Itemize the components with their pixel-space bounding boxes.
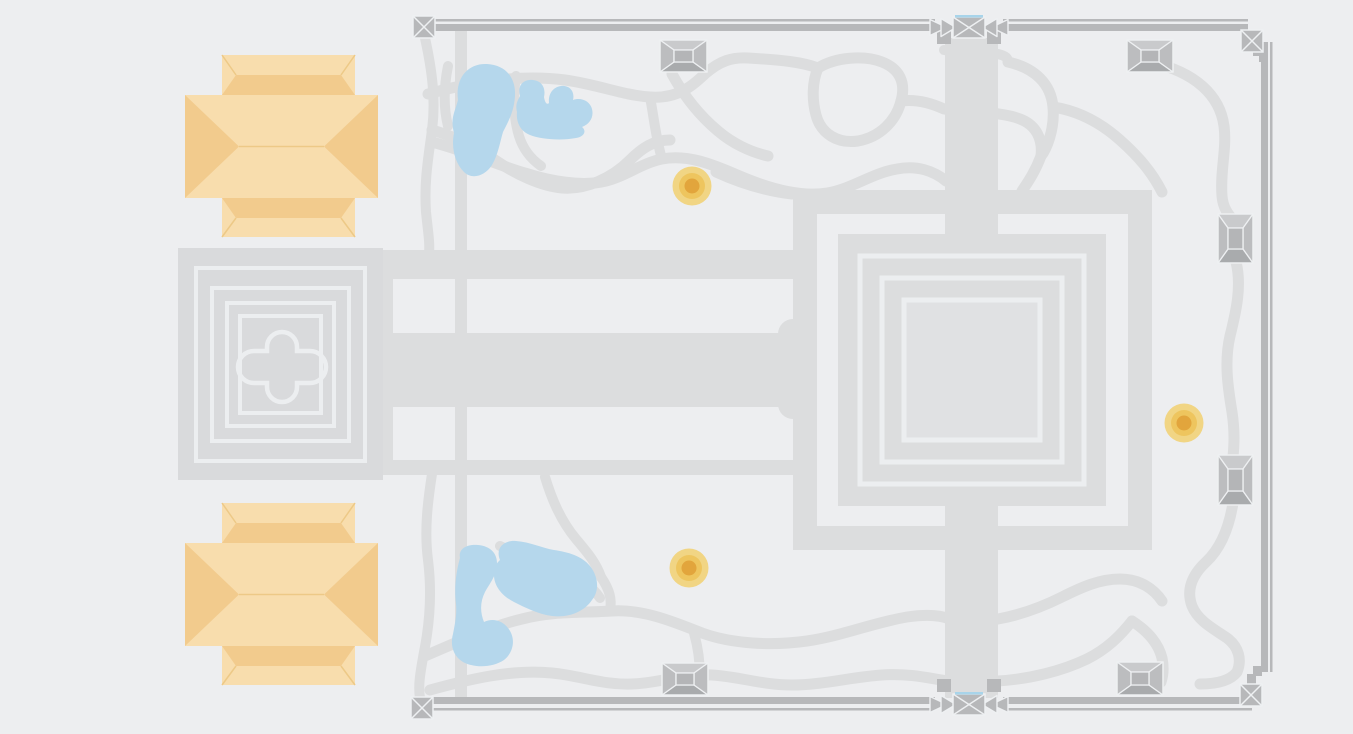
causeway-basin xyxy=(393,407,455,460)
tower-roof-top xyxy=(1131,672,1149,685)
corner-gate-icon xyxy=(1240,684,1262,706)
wall-north-band xyxy=(1003,24,1248,31)
moat-accent xyxy=(955,692,983,695)
wall-south-outer-line xyxy=(1003,708,1252,711)
wall-tower-icon xyxy=(1127,40,1173,72)
corner-gate-icon xyxy=(413,16,435,38)
central-causeway xyxy=(383,250,808,475)
causeway-basin xyxy=(467,407,793,460)
building-roof-facet xyxy=(222,523,355,543)
trail xyxy=(445,66,448,126)
wall-south-outer-line xyxy=(433,708,935,711)
complex-outer-gallery-east xyxy=(1128,190,1152,550)
wall-south-band xyxy=(1003,697,1243,704)
building-roof-facet xyxy=(222,646,355,666)
tower-roof-top xyxy=(676,673,694,685)
complex-central-courtyard xyxy=(904,300,1040,440)
poi-marker[interactable] xyxy=(1165,404,1204,443)
complex-outer-gallery-west xyxy=(793,190,817,550)
corner-gate-icon xyxy=(1241,30,1263,52)
wall-north-outer-line xyxy=(1003,19,1248,22)
tower-roof-top xyxy=(1228,228,1243,249)
tower-roof-top xyxy=(1228,469,1243,491)
wall-corner-jog xyxy=(1259,52,1268,62)
building-roof-facet xyxy=(222,75,355,95)
gate-step-block xyxy=(987,679,1001,692)
building-roof-facet xyxy=(222,198,355,218)
map-stage xyxy=(0,0,1353,734)
wall-east-outer-line xyxy=(1270,42,1273,672)
gate-step-block xyxy=(937,679,951,692)
wall-tower-icon xyxy=(1218,214,1253,263)
wall-north-outer-line xyxy=(435,19,935,22)
wall-tower-icon xyxy=(662,663,708,695)
causeway-basin xyxy=(393,279,455,333)
poi-marker-dot xyxy=(682,561,697,576)
poi-marker[interactable] xyxy=(673,167,712,206)
poi-marker-dot xyxy=(1177,416,1192,431)
wall-tower-icon xyxy=(1218,455,1253,505)
moat-accent xyxy=(955,15,983,18)
wall-tower-icon xyxy=(1117,662,1163,695)
tower-roof-top xyxy=(674,50,693,62)
temple-complex-map xyxy=(0,0,1353,734)
wall-north-band xyxy=(435,24,935,31)
wall-tower-icon xyxy=(660,40,707,72)
tower-roof-top xyxy=(1141,50,1159,62)
western-temple-platform xyxy=(178,248,383,480)
corner-gate-icon xyxy=(411,697,433,719)
poi-marker-dot xyxy=(685,179,700,194)
wall-south-band xyxy=(433,697,935,704)
poi-marker[interactable] xyxy=(670,549,709,588)
causeway-basin xyxy=(467,279,793,333)
wall-east-band xyxy=(1261,42,1268,672)
western-temple xyxy=(178,248,383,480)
